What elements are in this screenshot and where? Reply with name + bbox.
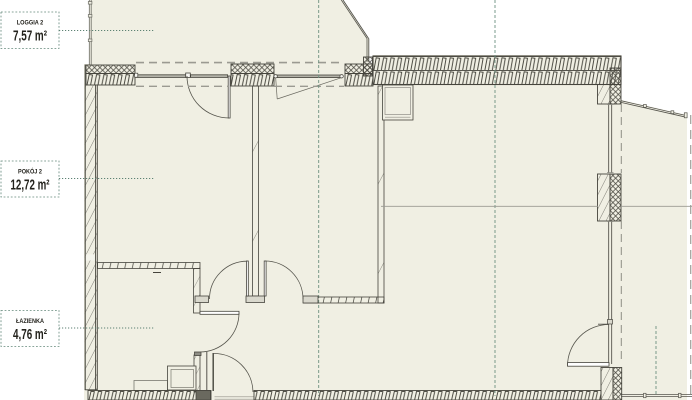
svg-text:LOGGIA 2: LOGGIA 2: [17, 19, 44, 26]
svg-text:POKÓJ 2: POKÓJ 2: [18, 166, 42, 175]
svg-text:7,57 m²: 7,57 m²: [13, 28, 47, 44]
svg-text:ŁAZIENKA: ŁAZIENKA: [16, 318, 44, 325]
svg-text:4,76 m²: 4,76 m²: [13, 327, 47, 343]
svg-text:12,72 m²: 12,72 m²: [11, 177, 50, 193]
